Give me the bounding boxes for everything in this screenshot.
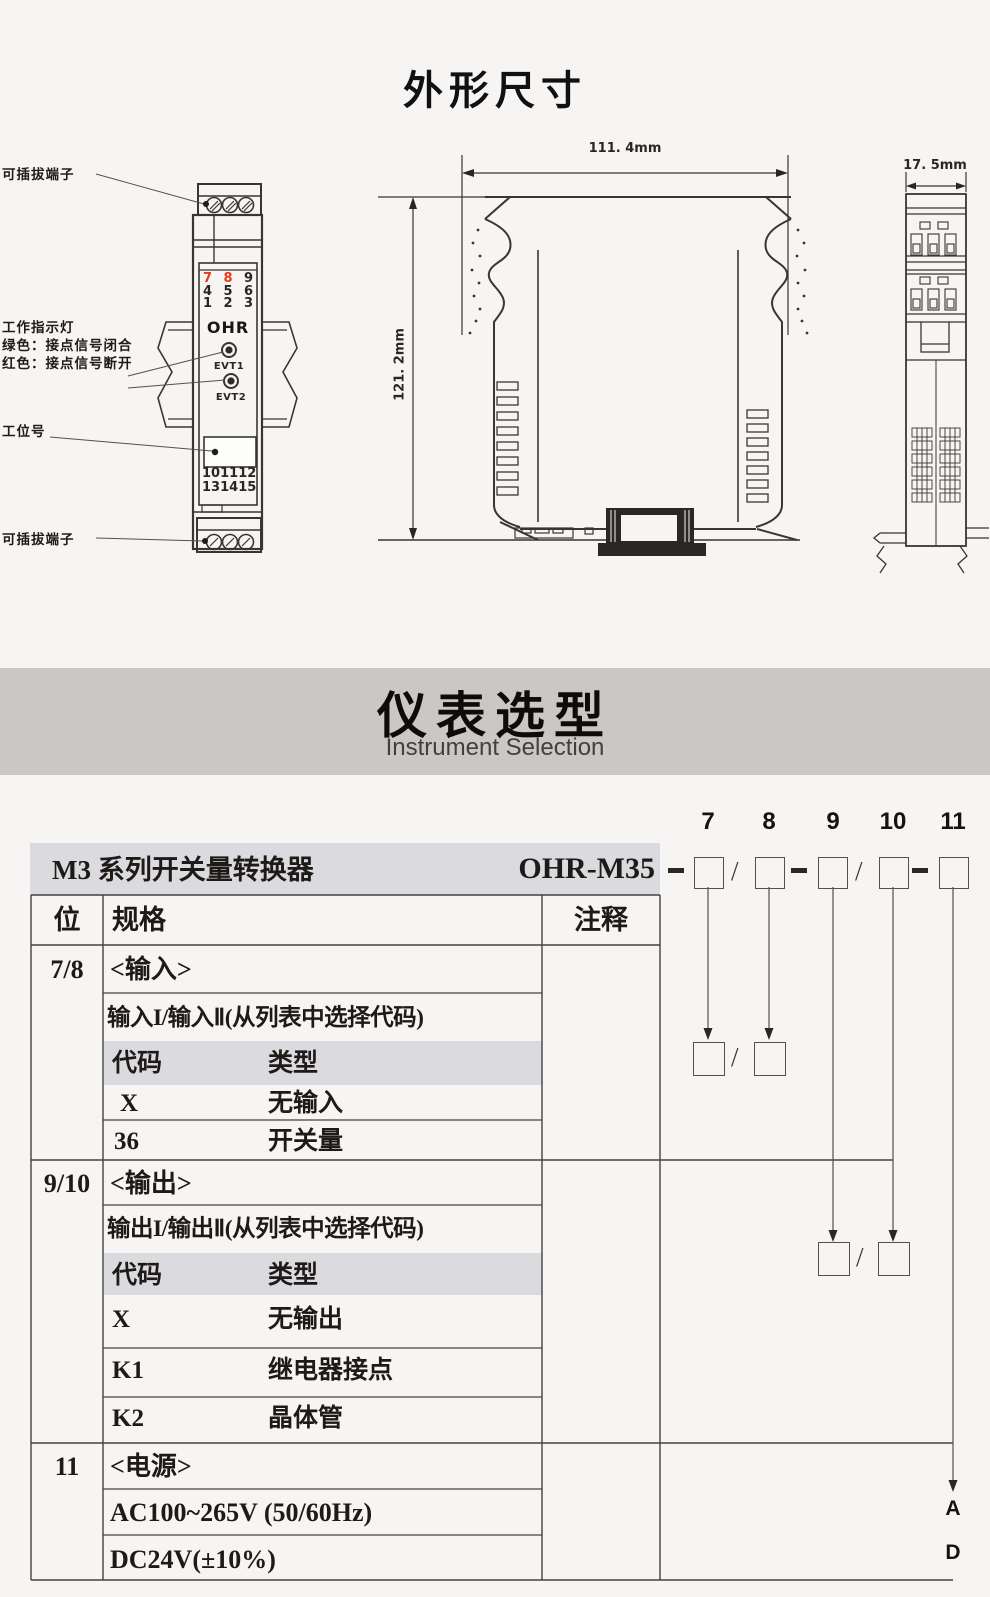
terminal-num: 1 [203, 298, 212, 311]
series-title: M3 系列开关量转换器 [52, 848, 314, 892]
output-row-type: 晶体管 [268, 1400, 343, 1438]
output-row-code: K2 [112, 1400, 144, 1438]
end-terminal-row1 [911, 222, 956, 255]
power-title: <电源> [110, 1447, 192, 1487]
terminal-numbers-top: 7 8 9 4 5 6 1 2 3 [203, 273, 253, 311]
code-connector-lines [704, 887, 958, 1492]
output-answer-slash: / [856, 1242, 864, 1273]
side-width-dim-text: 111. 4mm [540, 141, 710, 156]
selection-title-en: Instrument Selection [0, 734, 990, 762]
output-row-code: X [112, 1301, 130, 1339]
output-answer-box-9 [818, 1242, 850, 1276]
leader-dot-bottom [202, 538, 208, 544]
output-row-code: K1 [112, 1352, 144, 1390]
table-and-connector-lines [0, 0, 990, 1597]
led2-label: EVT2 [209, 392, 253, 403]
end-width-dim-text: 17. 5mm [880, 158, 990, 173]
texture-dots [469, 229, 809, 335]
input-row-code: 36 [114, 1123, 139, 1161]
input-answer-slash: / [731, 1042, 739, 1073]
din-rail-left [158, 322, 193, 427]
code-pos-10: 10 [873, 808, 913, 836]
output-answer-box-10 [878, 1242, 910, 1276]
width-dimension [462, 155, 788, 335]
code-box-9 [818, 857, 848, 889]
power-code-dc: D [933, 1541, 973, 1565]
label-indicator-line3: 红色：接点信号断开 [2, 352, 133, 372]
input-row-code: X [120, 1085, 138, 1123]
input-answer-box-7 [693, 1042, 725, 1076]
label-indicator-line2: 绿色：接点信号闭合 [2, 334, 133, 354]
led1-label: EVT1 [207, 361, 251, 372]
input-subtitle: 输入I/输入Ⅱ(从列表中选择代码) [107, 999, 423, 1037]
power-pos: 11 [31, 1447, 103, 1487]
output-type-col: 类型 [268, 1257, 318, 1295]
code-box-7 [694, 857, 724, 889]
terminal-numbers-bottom: 10 11 12 13 14 15 [202, 468, 256, 496]
terminal-num: 2 [223, 298, 232, 311]
label-pluggable-terminal-top: 可插拔端子 [2, 163, 75, 183]
leader-dot-top [203, 201, 209, 207]
output-row-type: 继电器接点 [268, 1352, 393, 1390]
end-display-knob [906, 322, 966, 352]
input-answer-box-8 [754, 1042, 786, 1076]
code-pos-7: 7 [688, 808, 728, 836]
power-row-dc: DC24V(±10%) [110, 1540, 276, 1580]
input-code-col: 代码 [112, 1045, 162, 1083]
module-end-view-drawing [860, 145, 990, 575]
side-height-dim-text: 121. 2mm [393, 315, 408, 415]
vent-slats-left [497, 382, 518, 495]
output-row-type: 无输出 [268, 1301, 343, 1339]
label-station-number: 工位号 [2, 420, 46, 440]
power-row-ac: AC100~265V (50/60Hz) [110, 1493, 372, 1533]
code-box-8 [755, 857, 785, 889]
code-pos-9: 9 [813, 808, 853, 836]
code-pos-11: 11 [933, 808, 973, 836]
code-slash-2: / [855, 856, 863, 887]
datasheet-page: 外形尺寸 可插拔端子 工作指示灯 绿色：接点信号闭合 红色：接点信号断开 工位号… [0, 0, 990, 1597]
station-number-box [204, 437, 256, 467]
col-header-spec: 规格 [112, 898, 166, 942]
top-terminal-block [198, 184, 261, 215]
latch-plate [515, 528, 593, 538]
input-title: <输入> [110, 950, 192, 990]
ohr-logo: OHR [200, 318, 256, 337]
section-title-dimensions: 外形尺寸 [0, 58, 990, 116]
input-code-header-band [104, 1041, 542, 1085]
terminal-num: 15 [238, 482, 256, 496]
output-pos: 9/10 [31, 1164, 103, 1204]
led-evt2 [224, 374, 238, 388]
end-width-dimension [906, 172, 966, 192]
output-code-col: 代码 [112, 1257, 162, 1295]
din-rail-right [262, 322, 297, 427]
label-pluggable-terminal-bottom: 可插拔端子 [2, 528, 75, 548]
bottom-terminal-block [197, 518, 261, 552]
terminal-num: 13 [202, 482, 220, 496]
label-indicator-line1: 工作指示灯 [2, 316, 75, 336]
code-dash-3 [912, 868, 928, 873]
side-body-outline [485, 197, 797, 540]
input-type-col: 类型 [268, 1045, 318, 1083]
power-code-ac: A [933, 1497, 973, 1521]
din-clip [598, 508, 706, 556]
module-side-view-drawing [370, 130, 830, 570]
code-dash-2 [791, 868, 807, 873]
end-vent-grilles [912, 428, 960, 502]
code-slash-1: / [731, 856, 739, 887]
code-dash-1 [668, 868, 684, 873]
code-box-11 [939, 857, 969, 889]
end-mount-feet [874, 528, 989, 573]
vent-slats-right [747, 410, 768, 502]
terminal-num: 14 [220, 482, 238, 496]
input-pos: 7/8 [31, 950, 103, 990]
code-pos-8: 8 [749, 808, 789, 836]
end-body [906, 194, 966, 546]
end-terminal-row2 [911, 277, 956, 310]
terminal-num: 3 [244, 298, 253, 311]
output-subtitle: 输出I/输出Ⅱ(从列表中选择代码) [107, 1210, 423, 1248]
input-row-type: 开关量 [268, 1123, 343, 1161]
code-box-10 [879, 857, 909, 889]
led-evt1 [222, 343, 236, 357]
output-title: <输出> [110, 1164, 192, 1204]
col-header-note: 注释 [542, 898, 660, 942]
module-body [193, 215, 262, 549]
input-row-type: 无输入 [268, 1085, 343, 1123]
output-code-header-band [104, 1253, 542, 1295]
model-number: OHR-M35 [400, 845, 655, 893]
col-header-pos: 位 [31, 898, 103, 942]
